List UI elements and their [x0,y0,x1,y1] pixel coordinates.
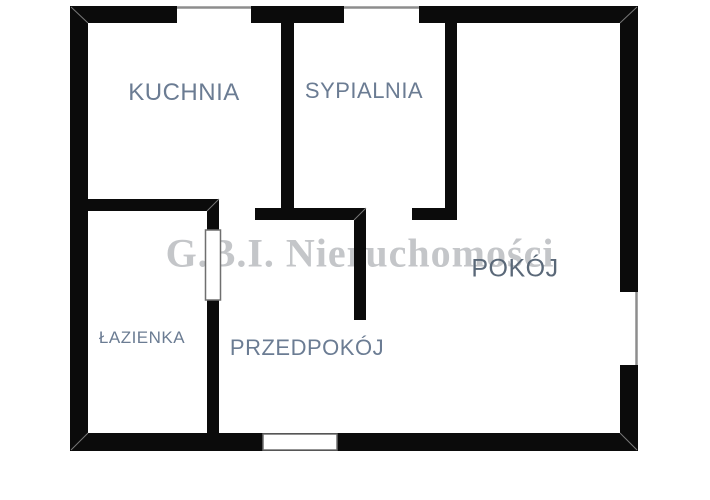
wall-right-upper [620,6,638,292]
bathroom-door [206,230,221,300]
windows [177,8,637,366]
floor-plan-image: G.B.I. Nieruchomości [0,0,710,500]
wall-top-segment-a [70,6,177,23]
room-label-kuchnia: KUCHNIA [128,79,240,107]
wall-hall-room [354,208,366,320]
wall-bedroom-room [445,6,457,220]
wall-bedroom-foot [412,208,457,220]
wall-bathroom-hall-upper [207,199,219,231]
wall-left [70,6,88,451]
wall-bathroom-hall-lower [207,299,219,433]
wall-kitchen-bathroom [88,199,219,211]
room-label-pokoj: POKÓJ [471,255,558,284]
wall-hall-south-of-kitchen [255,208,366,220]
room-label-lazienka: ŁAZIENKA [99,328,185,348]
room-label-sypialnia: SYPIALNIA [305,78,423,104]
room-label-przedpokoj: PRZEDPOKÓJ [230,335,384,361]
wall-top-segment-b [251,6,344,23]
entrance-door [263,434,337,450]
wall-bottom [70,433,638,451]
floor-plan-drawing [0,0,710,500]
interior-walls [88,6,457,433]
wall-kitchen-bedroom [281,6,294,220]
